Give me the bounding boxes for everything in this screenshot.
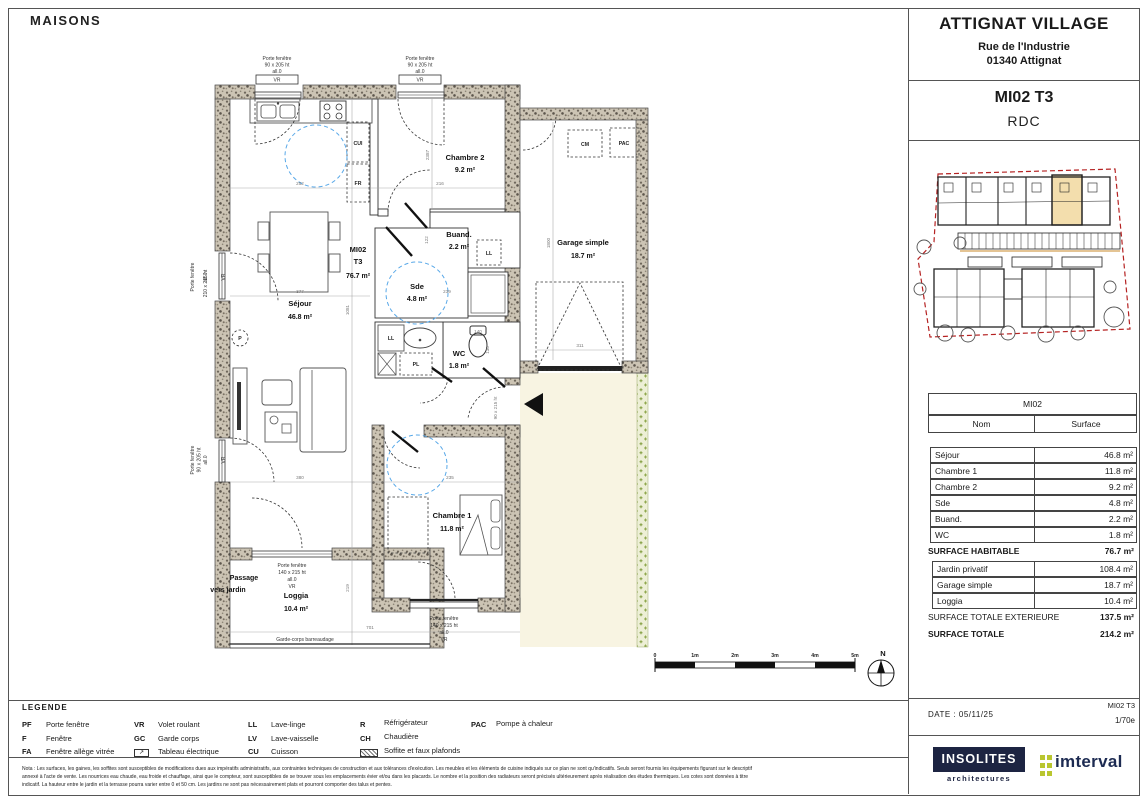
svg-text:Passage: Passage [230,575,259,582]
svg-text:vers jardin: vers jardin [210,587,245,594]
table-row: Chambre 111.8 m² [930,463,1137,479]
svg-text:Porte fenêtre: Porte fenêtre [406,56,435,62]
north-compass: N [868,649,894,686]
note-line: Nota : Les surfaces, les gaines, les sof… [22,765,887,773]
svg-text:FR: FR [355,181,362,187]
table-row: Sde4.8 m² [930,495,1137,511]
svg-text:9.2 m²: 9.2 m² [455,167,476,174]
imterval-logo-icon [1040,755,1053,776]
svg-text:90 x 205 ht: 90 x 205 ht [197,447,203,472]
panel-line-3 [908,698,1139,699]
habitable-row: SURFACE HABITABLE 76.7 m² [928,546,1137,561]
svg-text:252: 252 [296,181,304,186]
hedge-strip [637,373,648,647]
svg-text:1800: 1800 [546,237,551,248]
svg-text:Chambre 1: Chambre 1 [433,511,472,520]
table-row: WC1.8 m² [930,527,1137,543]
svg-text:76.7 m²: 76.7 m² [346,273,371,280]
svg-text:MI02: MI02 [350,245,367,254]
svg-text:4m: 4m [811,653,819,659]
table-row: Garage simple18.7 m² [932,577,1137,593]
address-line1: Rue de l'Industrie [909,41,1139,53]
svg-text:WC: WC [453,349,466,358]
svg-text:140 x 215 ht: 140 x 215 ht [430,623,458,629]
svg-text:2m: 2m [731,653,739,659]
footer-unit: MI02 T3 [1040,701,1135,710]
svg-text:219: 219 [345,584,350,592]
svg-text:Sde: Sde [410,282,424,291]
table-row: Jardin privatif108.4 m² [932,561,1137,577]
sofa [300,368,346,452]
svg-text:VR: VR [274,78,281,84]
svg-text:216: 216 [436,181,444,186]
svg-text:90 x 215 ht: 90 x 215 ht [493,396,498,419]
svg-text:239: 239 [443,289,451,294]
date-label: DATE : 05/11/25 [928,710,993,719]
chambre1-furniture [388,495,502,555]
table-row: Loggia10.4 m² [932,593,1137,609]
svg-text:N: N [880,649,885,658]
floor-level: RDC [909,113,1139,129]
svg-text:90 x 205 ht: 90 x 205 ht [408,63,433,69]
wardrobe [388,497,428,553]
svg-text:122: 122 [424,236,429,244]
site-trees [914,237,1124,342]
table-header: MI02 [928,393,1137,415]
svg-text:2.2 m²: 2.2 m² [449,244,470,251]
svg-text:PL: PL [413,362,420,368]
svg-text:4.8 m²: 4.8 m² [407,296,428,303]
table-row: Buand.2.2 m² [930,511,1137,527]
legend-divider [8,700,908,701]
col-name: Nom [929,419,1034,429]
unit-title: MI02 T3 [909,89,1139,107]
svg-text:VR: VR [221,273,227,280]
svg-text:380: 380 [296,475,304,480]
drawing-sheet: MAISONS [0,0,1147,803]
svg-text:VR: VR [441,637,448,643]
svg-text:1m: 1m [691,653,699,659]
sejour-furniture [232,212,346,452]
svg-text:Garde-corps barreaudage: Garde-corps barreaudage [276,637,334,643]
svg-text:11.8 m²: 11.8 m² [440,526,464,533]
col-surface: Surface [1034,419,1138,429]
site-plan [910,147,1138,385]
svg-text:T3: T3 [354,257,363,266]
table-row: Séjour46.8 m² [930,447,1137,463]
ext-total-row: SURFACE TOTALE EXTERIEURE 137.5 m² [928,612,1137,627]
svg-text:701: 701 [366,625,374,630]
jardin-area [520,373,648,647]
svg-text:130: 130 [485,346,490,354]
svg-text:VR: VR [417,78,424,84]
svg-text:Chambre 2: Chambre 2 [446,153,485,162]
svg-text:140 x 215 ht: 140 x 215 ht [278,570,306,576]
svg-text:Garage simple: Garage simple [557,238,609,247]
svg-text:LL: LL [388,336,395,342]
garde-corps: Garde-corps barreaudage [230,637,430,648]
dining-table [270,212,328,292]
svg-text:Porte fenêtre: Porte fenêtre [263,56,292,62]
svg-text:Buand.: Buand. [446,230,471,239]
svg-text:Loggia: Loggia [284,591,309,600]
svg-text:Porte fenêtre: Porte fenêtre [190,445,196,474]
svg-text:18.7 m²: 18.7 m² [571,253,596,260]
footer-scale: 1/70e [1040,716,1135,725]
note-line: indicatif. La hauteur entre le jardin et… [22,781,887,789]
svg-text:PAC: PAC [619,141,630,147]
bed [460,495,502,555]
svg-text:311: 311 [576,343,584,348]
svg-text:235: 235 [446,475,454,480]
svg-text:LL: LL [486,251,493,257]
svg-text:all.0: all.0 [203,272,209,281]
svg-text:377: 377 [296,289,304,294]
legend-title: LEGENDE [22,703,68,712]
soffite-icon [360,749,378,757]
address-line2: 01340 Attignat [909,55,1139,67]
svg-text:all.0: all.0 [203,455,209,464]
site-buildings [934,175,1120,327]
svg-text:Porte fenêtre: Porte fenêtre [190,262,196,291]
svg-text:Séjour: Séjour [288,299,311,308]
svg-text:10.4 m²: 10.4 m² [284,606,309,613]
svg-text:CM: CM [581,142,589,148]
svg-text:90 x 205 ht: 90 x 205 ht [265,63,290,69]
panel-line-2 [908,140,1139,141]
panel-line-4 [908,735,1139,736]
svg-text:Porte fenêtre: Porte fenêtre [278,563,307,569]
svg-text:VR: VR [221,456,227,463]
panel-line-1 [908,80,1139,81]
svg-text:1081: 1081 [345,304,350,315]
project-title: ATTIGNAT VILLAGE [909,14,1139,34]
insolites-logo-sub: architectures [933,774,1025,783]
floor-plan: 252 216 377 380 235 701 311 1081 219 238… [0,0,908,700]
imterval-logo: imterval [1055,752,1123,772]
total-row: SURFACE TOTALE 214.2 m² [928,629,1137,644]
svg-text:all.0: all.0 [272,69,281,75]
coffee-table [265,412,297,442]
insolites-logo: INSOLITES [933,747,1025,772]
svg-text:1.8 m²: 1.8 m² [449,363,470,370]
svg-text:all.0: all.0 [287,577,296,583]
svg-text:VR: VR [289,584,296,590]
notes-divider [8,757,908,758]
tableau-electrique-icon: ↗ [134,749,149,757]
highlighted-unit [1052,175,1082,225]
armchair [262,380,292,405]
svg-text:CUI: CUI [354,141,363,147]
svg-text:all.0: all.0 [415,69,424,75]
scale-bar: 0 1m 2m 3m 4m 5m [654,653,860,672]
svg-text:2387: 2387 [425,149,430,160]
svg-text:140: 140 [474,329,482,334]
note-line: annexé à l'acte de vente. Les nourrices … [22,773,887,781]
svg-text:46.8 m²: 46.8 m² [288,314,313,321]
svg-text:all.0: all.0 [439,630,448,636]
svg-text:P: P [238,336,242,342]
svg-text:3m: 3m [771,653,779,659]
svg-text:Porte fenêtre: Porte fenêtre [430,616,459,622]
site-boundary [918,169,1130,337]
table-row: Chambre 29.2 m² [930,479,1137,495]
